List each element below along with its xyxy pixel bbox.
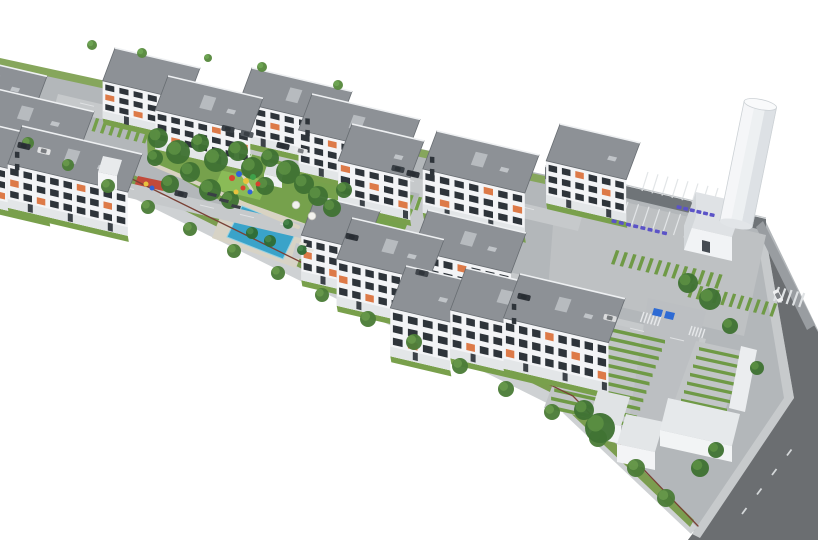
park-tree-crown [150, 129, 161, 140]
aerial-render-stage [0, 0, 818, 540]
park-tree-crown [296, 175, 307, 186]
park-tree-crown [709, 443, 718, 452]
playground-equipment [248, 190, 253, 195]
building-f3-door [523, 363, 528, 372]
playground-equipment [241, 186, 246, 191]
street-tree-crown [228, 245, 236, 253]
umbrella [308, 212, 316, 220]
parking-lines-b [662, 177, 668, 196]
building-b4-door [108, 223, 113, 232]
playground-equipment [250, 174, 256, 180]
building-e2-door [566, 199, 571, 208]
park-tree-crown [692, 460, 702, 470]
building-c1-door [403, 210, 408, 219]
street-tree-crown [142, 201, 150, 209]
building-a4-door [319, 168, 324, 177]
residential-complex-aerial-render [0, 0, 818, 540]
park-tree-crown [751, 362, 759, 370]
park-tree-crown [206, 150, 219, 163]
building-a1-door [124, 116, 129, 125]
street-tree-crown [316, 289, 324, 297]
playground-equipment [229, 175, 235, 181]
playground-equipment [144, 182, 149, 187]
parking-lines-b [672, 179, 678, 198]
playground-equipment [236, 171, 242, 177]
street-tree-crown [63, 160, 70, 167]
small-tree-crown [88, 41, 94, 47]
building-b4-side-window [15, 152, 20, 158]
building-b4-door [68, 213, 73, 222]
palm-tree-crown [284, 220, 290, 226]
park-tree-crown [243, 158, 255, 170]
building-a4-side-window [305, 118, 310, 124]
park-tree-crown [310, 187, 321, 198]
tower-plinth-door [702, 240, 710, 253]
building-e2-door [606, 209, 611, 218]
park-tree-crown [324, 200, 334, 210]
park-tree-crown [680, 274, 691, 285]
park-tree-crown [278, 162, 291, 175]
small-tree-crown [205, 55, 209, 59]
playground-equipment [150, 186, 155, 191]
building-d1-door [321, 276, 326, 285]
park-tree-crown [182, 163, 193, 174]
street-tree-crown [499, 382, 508, 391]
palm-tree-crown [298, 246, 304, 252]
street-tree-crown [184, 223, 192, 231]
small-tree-crown [334, 81, 340, 87]
park-tree-crown [337, 183, 346, 192]
street-tree-crown [272, 267, 280, 275]
building-e1-side-window [430, 169, 435, 175]
building-b4-side-window [15, 164, 20, 170]
building-f3-door [602, 382, 607, 391]
street-tree-crown [102, 180, 110, 188]
parking-lines-b [652, 174, 658, 193]
playground-equipment [243, 178, 249, 184]
street-tree-crown [658, 490, 668, 500]
park-tree-crown [230, 142, 241, 153]
parking-lines-b [682, 181, 688, 200]
playground-equipment [234, 190, 239, 195]
building-f3-side-window [512, 304, 517, 311]
park-tree-crown [576, 401, 587, 412]
building-a4-side-window [305, 130, 310, 136]
palm-tree-crown [247, 228, 254, 235]
building-f1-door [413, 352, 418, 361]
building-a3-door [261, 138, 266, 147]
playground-equipment [256, 182, 261, 187]
water-tower [719, 96, 778, 231]
street-tree-crown [407, 335, 416, 344]
building-f3-door [563, 372, 568, 381]
building-d2-door [356, 301, 361, 310]
park-tree-crown [262, 150, 272, 160]
street-tree-crown [361, 312, 370, 321]
street-tree-crown [628, 460, 638, 470]
parking-lines-b [642, 172, 648, 191]
small-tree-crown [138, 49, 144, 55]
building-b4-door [28, 204, 33, 213]
palm-tree-crown [265, 236, 272, 243]
park-tree-crown [148, 151, 157, 160]
park-tree-crown [201, 180, 213, 192]
umbrella [292, 201, 300, 209]
park-tree-crown [723, 319, 732, 328]
street-tree-crown [545, 405, 554, 414]
building-f3-side-window [512, 318, 517, 325]
building-e1-side-window [430, 157, 435, 163]
small-tree-crown [258, 63, 264, 69]
street-tree-crown [453, 359, 462, 368]
park-tree-crown [701, 289, 713, 301]
park-tree-crown [168, 142, 181, 155]
building-f2-door [471, 353, 476, 362]
park-tree-crown [162, 176, 172, 186]
park-tree-crown [192, 135, 202, 145]
